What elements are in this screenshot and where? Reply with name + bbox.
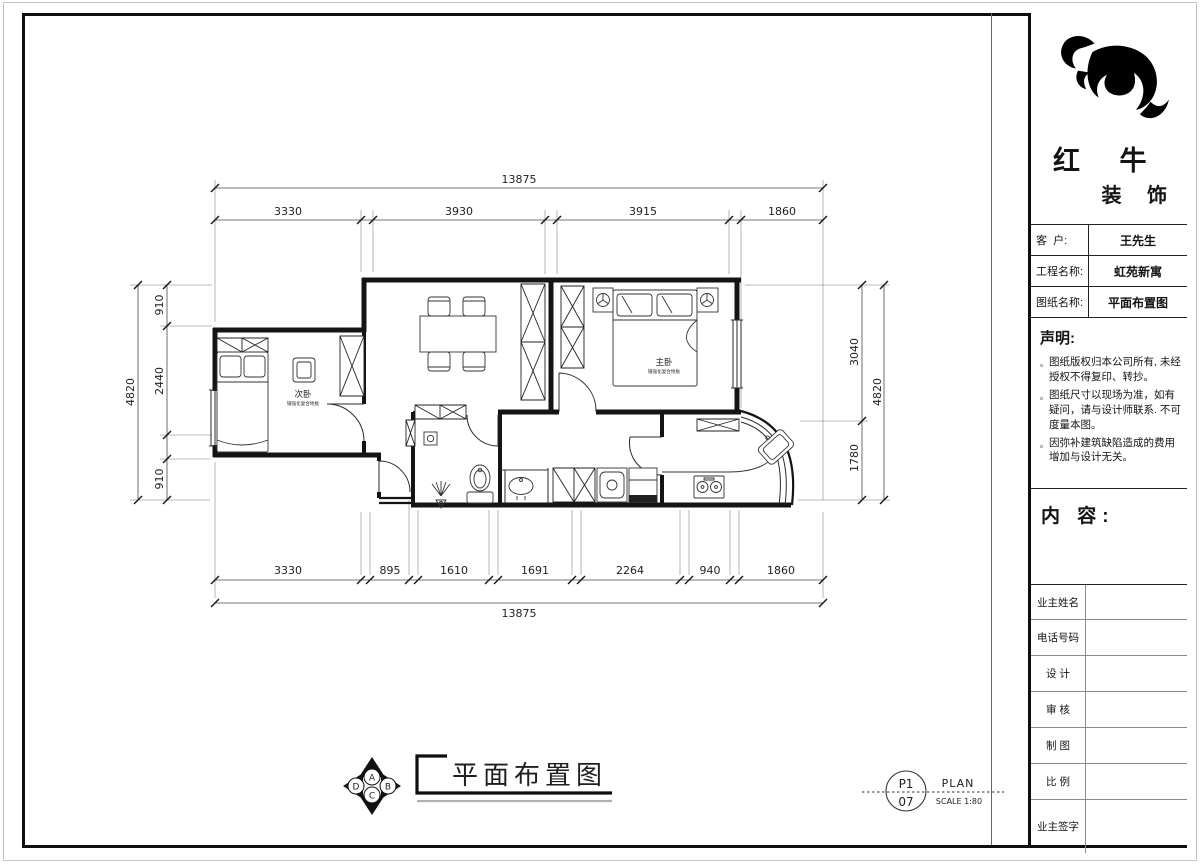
dim-label: 1610 <box>440 564 468 577</box>
room-note-secondary: 铺强化复合地板 <box>287 400 320 407</box>
sign-value-cell <box>1086 620 1187 655</box>
small-fixture <box>424 432 437 445</box>
room-note-master: 铺强化复合地板 <box>648 368 681 375</box>
washing-machine <box>597 468 627 502</box>
dim-label: 940 <box>700 564 721 577</box>
dimensions-right: 3040 1780 4820 <box>745 281 890 504</box>
drawing-sheet: 13875 3330 3930 3915 1860 3330 895 1610 … <box>0 0 1200 864</box>
sign-row-owner-signature: 业主签字 <box>1031 800 1187 853</box>
bullet: 。 <box>1040 388 1049 433</box>
compass-e: B <box>385 783 391 793</box>
sign-value-cell <box>1086 656 1187 691</box>
kitchen-counter-edge <box>662 456 774 472</box>
dim-label: 3330 <box>274 205 302 218</box>
statement-item: 。 图纸尺寸以现场为准，如有疑问，请与设计师联系. 不可度量本图。 <box>1040 388 1181 433</box>
info-row-project: 工程名称: 虹苑新寓 <box>1031 256 1187 287</box>
wash-basin <box>500 470 548 500</box>
content-label: 内 容: <box>1041 506 1115 527</box>
bullet: 。 <box>1040 355 1049 385</box>
stamp-type: PLAN <box>942 777 975 790</box>
refrigerator <box>629 468 657 502</box>
statement-section: 声明: 。 图纸版权归本公司所有, 未经授权不得复印、转抄。 。 图纸尺寸以现场… <box>1031 318 1187 489</box>
dim-label: 3040 <box>848 338 861 366</box>
bed-secondary <box>217 352 268 452</box>
dim-label: 2264 <box>616 564 644 577</box>
nightstand-top <box>297 362 311 378</box>
dimensions-top: 13875 3330 3930 3915 1860 <box>211 173 827 500</box>
sheet-title-block: 平面布置图 <box>417 756 612 801</box>
compass-icon: A B C D <box>343 757 401 815</box>
signature-table: 业主姓名 电话号码 设 计 审 核 制 图 比 例 业主签字 <box>1031 585 1187 853</box>
statement-item: 。 图纸版权归本公司所有, 未经授权不得复印、转抄。 <box>1040 355 1181 385</box>
brand-name: 红 牛 <box>1053 139 1163 178</box>
dim-label: 13875 <box>502 607 537 620</box>
sign-row-design: 设 计 <box>1031 656 1187 692</box>
sign-row-draft: 制 图 <box>1031 728 1187 764</box>
dim-label: 3930 <box>445 205 473 218</box>
stamp-code-bottom: 07 <box>898 795 913 809</box>
stamp-code-top: P1 <box>899 777 914 791</box>
dim-label: 2440 <box>153 367 166 395</box>
sign-value-cell <box>1086 728 1187 763</box>
stamp-scale: SCALE 1:80 <box>936 797 982 806</box>
dim-label: 1860 <box>768 205 796 218</box>
gas-stove <box>694 476 724 498</box>
title-block: 红 牛 装 饰 客 户: 王先生 工程名称: 虹苑新寓 图纸名称: 平面布置图 … <box>1028 13 1187 845</box>
statement-item: 。 因弥补建筑缺陷造成的费用增加与设计无关。 <box>1040 436 1181 466</box>
info-value: 虹苑新寓 <box>1089 263 1187 280</box>
dim-label: 3330 <box>274 564 302 577</box>
info-row-sheet: 图纸名称: 平面布置图 <box>1031 287 1187 318</box>
sheet-number-stamp: P1 07 PLAN SCALE 1:80 <box>862 771 1004 811</box>
info-label: 图纸名称: <box>1031 287 1089 317</box>
compass-s: C <box>369 792 375 802</box>
dim-label: 910 <box>153 295 166 316</box>
statement-title: 声明: <box>1040 327 1181 348</box>
sign-row-phone: 电话号码 <box>1031 620 1187 656</box>
room-name-master: 主卧 <box>655 357 673 368</box>
dining-set <box>420 297 496 371</box>
bullet: 。 <box>1040 436 1049 466</box>
info-value: 王先生 <box>1089 232 1187 249</box>
statement-list: 。 图纸版权归本公司所有, 未经授权不得复印、转抄。 。 图纸尺寸以现场为准，如… <box>1040 355 1181 465</box>
room-name-secondary: 次卧 <box>294 389 312 400</box>
compass-w: D <box>353 783 360 793</box>
compass-n: A <box>369 774 376 784</box>
toilet <box>467 465 493 503</box>
sign-row-review: 审 核 <box>1031 692 1187 728</box>
dimensions-left: 910 2440 910 4820 <box>124 281 212 504</box>
sign-value-cell <box>1086 585 1187 619</box>
sign-value-cell <box>1086 692 1187 727</box>
bull-logo-icon <box>1047 29 1171 133</box>
dim-label: 4820 <box>124 378 137 406</box>
dim-label: 1860 <box>767 564 795 577</box>
sign-row-scale: 比 例 <box>1031 764 1187 800</box>
floor-plan-drawing: 13875 3330 3930 3915 1860 3330 895 1610 … <box>0 0 1030 864</box>
info-row-client: 客 户: 王先生 <box>1031 225 1187 256</box>
sign-row-owner-name: 业主姓名 <box>1031 585 1187 620</box>
info-label: 工程名称: <box>1031 256 1089 286</box>
content-section: 内 容: <box>1031 489 1187 585</box>
dim-label: 1780 <box>848 444 861 472</box>
sheet-title: 平面布置图 <box>452 761 607 791</box>
dim-label: 895 <box>380 564 401 577</box>
info-value: 平面布置图 <box>1089 294 1187 311</box>
brand-subname: 装 饰 <box>1101 179 1177 208</box>
sign-value-cell <box>1086 800 1187 853</box>
dim-label: 3915 <box>629 205 657 218</box>
dim-label: 1691 <box>521 564 549 577</box>
sign-value-cell <box>1086 764 1187 799</box>
dim-label: 4820 <box>871 378 884 406</box>
info-label: 客 户: <box>1031 225 1089 255</box>
brand-logo-area: 红 牛 装 饰 <box>1031 13 1187 225</box>
dim-label: 13875 <box>502 173 537 186</box>
dim-label: 910 <box>153 469 166 490</box>
